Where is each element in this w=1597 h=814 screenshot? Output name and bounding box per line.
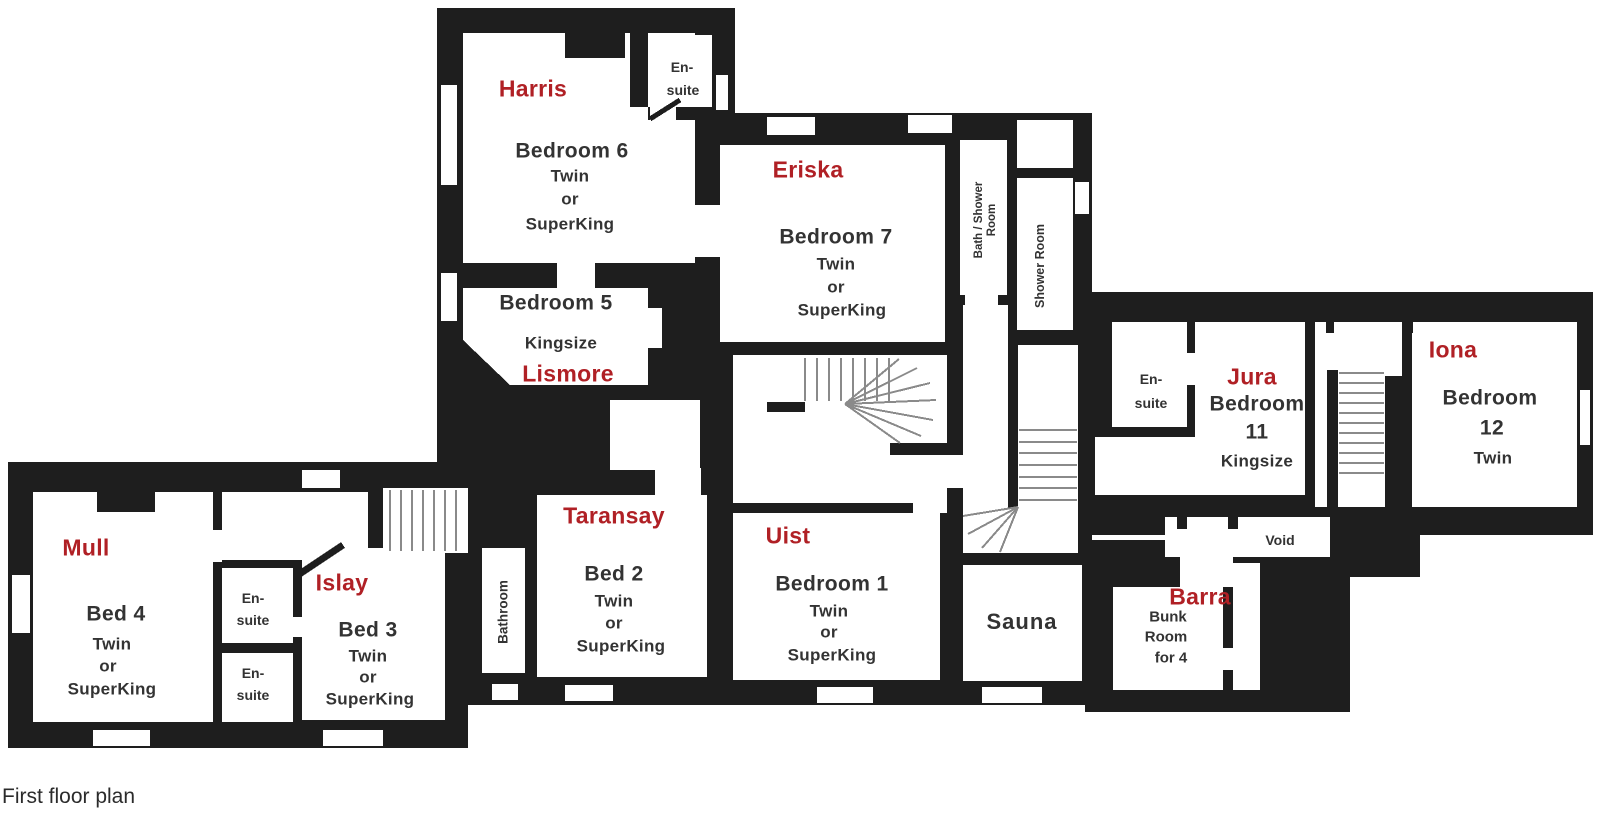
room-title-bedroom5: Bedroom 5 <box>499 293 612 314</box>
bed3-superking: SuperKing <box>326 691 415 708</box>
room-label-islay: Islay <box>316 572 369 595</box>
jura-ensuite-line1: En- <box>1140 372 1163 386</box>
bed7-twin: Twin <box>817 256 856 273</box>
bunk-room-line2: Room <box>1145 630 1188 645</box>
bed2-superking: SuperKing <box>577 638 666 655</box>
bed5-kingsize: Kingsize <box>525 335 597 352</box>
bed7-or: or <box>827 279 845 296</box>
room-title-bedroom12: Bedroom <box>1443 388 1538 409</box>
bed6-superking: SuperKing <box>526 216 615 233</box>
bed2-or: or <box>605 615 623 632</box>
room-label-taransay: Taransay <box>563 505 665 528</box>
bed3-twin: Twin <box>349 648 388 665</box>
room-label-mull: Mull <box>62 537 109 560</box>
bed2-twin: Twin <box>595 593 634 610</box>
bed12-twin: Twin <box>1474 450 1513 467</box>
bed6-or: or <box>561 191 579 208</box>
room-title-bed4: Bed 4 <box>86 604 145 625</box>
room-title-bedroom12-number: 12 <box>1480 418 1504 439</box>
room-title-bed3: Bed 3 <box>338 620 397 641</box>
ensuite-b-line2: suite <box>237 688 270 702</box>
room-title-bedroom7: Bedroom 7 <box>779 227 892 248</box>
bathroom-label: Bathroom <box>496 580 510 644</box>
ensuite-a-line2: suite <box>237 613 270 627</box>
ensuite-a-line1: En- <box>242 591 265 605</box>
shower-room-label: Shower Room <box>1034 224 1047 308</box>
bed11-kingsize: Kingsize <box>1221 453 1293 470</box>
bath-shower-line1: Bath / Shower <box>973 182 986 259</box>
bunk-room-line3: for 4 <box>1155 651 1188 666</box>
bunk-room-line1: Bunk <box>1149 610 1187 625</box>
room-label-jura: Jura <box>1227 366 1277 389</box>
bed6-twin: Twin <box>551 168 590 185</box>
ensuite-b-line1: En- <box>242 666 265 680</box>
room-title-bedroom11-number: 11 <box>1246 422 1269 443</box>
ensuite-top-line2: suite <box>667 83 700 97</box>
bed4-or: or <box>99 658 117 675</box>
room-title-bedroom11: Bedroom <box>1210 394 1305 415</box>
plan-caption: First floor plan <box>2 785 135 809</box>
room-label-eriska: Eriska <box>773 159 844 182</box>
bed7-superking: SuperKing <box>798 302 887 319</box>
bed1-superking: SuperKing <box>788 647 877 664</box>
void-label: Void <box>1265 533 1294 547</box>
room-label-harris: Harris <box>499 78 567 101</box>
room-label-uist: Uist <box>766 525 811 548</box>
room-label-lismore: Lismore <box>522 363 614 386</box>
jura-ensuite-line2: suite <box>1135 396 1168 410</box>
bath-shower-room-label: Bath / Shower Room <box>973 182 999 259</box>
room-label-iona: Iona <box>1429 339 1477 362</box>
floor-plan-page: Harris Eriska Lismore Jura Iona Mull Isl… <box>0 0 1597 814</box>
room-title-bedroom6: Bedroom 6 <box>515 141 628 162</box>
bed3-or: or <box>359 669 377 686</box>
bed4-twin: Twin <box>93 636 132 653</box>
room-title-bedroom1: Bedroom 1 <box>775 574 888 595</box>
ensuite-top-line1: En- <box>671 60 694 74</box>
bath-shower-line2: Room <box>986 182 999 259</box>
room-label-barra: Barra <box>1169 586 1231 609</box>
bed1-or: or <box>820 624 838 641</box>
room-title-sauna: Sauna <box>986 611 1057 633</box>
bed1-twin: Twin <box>810 603 849 620</box>
bed4-superking: SuperKing <box>68 681 157 698</box>
room-title-bed2: Bed 2 <box>584 564 643 585</box>
